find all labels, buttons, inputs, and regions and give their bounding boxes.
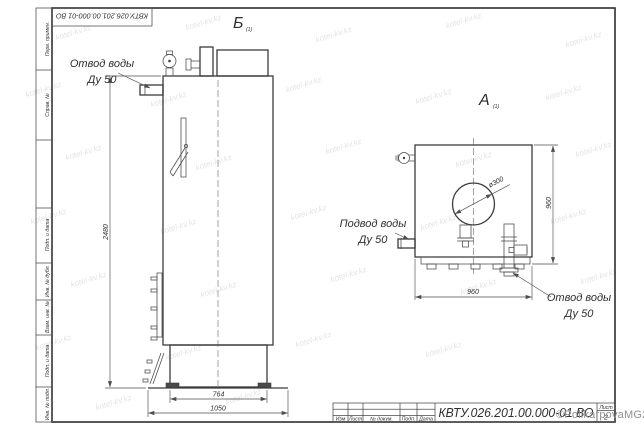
left-margin-strip: Перв. примен. Справ. № Подп. и дата Инв.…	[36, 8, 52, 422]
callout-inlet-line1: Подвод воды	[340, 218, 407, 230]
chimney-elbow	[186, 59, 200, 70]
title-col-label: Дата	[418, 417, 433, 423]
view-b-label: Б	[233, 15, 243, 32]
margin-cell-label: Взам. инв. №	[45, 301, 51, 333]
door-handle	[170, 118, 188, 177]
doc-number-box-top: КВТУ.026.201.00.000-01 ВО	[52, 8, 152, 26]
dim-front-width-value: 960	[467, 289, 479, 296]
front-view: А (1) ø300	[340, 92, 611, 320]
view-a-label: А	[478, 92, 490, 109]
safety-valve-icon	[163, 51, 176, 76]
dim-hatch-diameter: ø300	[455, 176, 510, 214]
frame-border	[52, 8, 615, 422]
drawing-sheet: kotel-kv.kz kotel-kv.kz kotel-kv.kz kote…	[0, 0, 644, 430]
callout-outlet-bottom-line2: Ду 50	[563, 308, 595, 320]
title-col-label: № докум.	[370, 417, 393, 423]
dim-front-height: 960	[532, 145, 558, 264]
lower-bracket	[143, 353, 164, 384]
callout-outlet-top: Отвод воды Ду 50	[70, 58, 150, 88]
margin-cell-label: Инв. № дубл.	[45, 265, 51, 297]
view-b-scale: (1)	[246, 27, 252, 33]
drain-pipe-center	[457, 225, 474, 247]
inlet-pipe	[398, 238, 415, 249]
dim-pedestal-width: 764	[170, 390, 267, 403]
callout-outlet-top-line1: Отвод воды	[70, 58, 134, 70]
dim-pedestal-width-value: 764	[213, 392, 225, 399]
dim-front-height-value: 960	[546, 197, 553, 209]
boiler-pedestal	[170, 345, 267, 387]
safety-valve-front	[396, 153, 415, 164]
outlet-flange-side	[140, 85, 163, 95]
margin-cell-label: Подп. и дата	[45, 345, 51, 378]
margin-cell-label: Инв. № подл.	[45, 388, 51, 420]
callout-outlet-bottom: Отвод воды Ду 50	[513, 273, 611, 320]
dim-base-width-value: 1050	[210, 406, 226, 413]
dim-front-width: 960	[415, 259, 532, 300]
callout-inlet-line2: Ду 50	[357, 234, 389, 246]
smoke-box	[217, 50, 268, 76]
title-col-label: Изм	[336, 417, 346, 423]
title-col-label: Подп.	[402, 417, 416, 423]
margin-cell-label: Перв. примен.	[45, 22, 51, 56]
technical-drawing: Перв. примен. Справ. № Подп. и дата Инв.…	[0, 0, 644, 430]
margin-cell-label: Справ. №	[45, 93, 51, 117]
callout-outlet-bottom-line1: Отвод воды	[547, 292, 611, 304]
outlet-pump-assembly	[500, 224, 527, 276]
dim-height: 2480	[103, 76, 161, 388]
doc-number-top-text: КВТУ.026.201.00.000-01 ВО	[55, 12, 148, 19]
copyright-watermark: ©PolikarpovaMG2021	[556, 409, 644, 421]
chimney-pipe	[200, 47, 213, 76]
foot-right	[258, 383, 271, 388]
dim-height-value: 2480	[103, 224, 110, 241]
side-view: Б (1)	[70, 15, 288, 417]
view-a-scale: (1)	[493, 104, 499, 110]
callout-outlet-top-line2: Ду 50	[86, 74, 118, 86]
title-col-label: Лист	[348, 417, 363, 423]
margin-cell-label: Подп. и дата	[45, 219, 51, 252]
foot-left	[166, 383, 179, 388]
dim-hatch-diameter-value: ø300	[488, 176, 505, 190]
door-hinge-bolts	[151, 273, 162, 340]
